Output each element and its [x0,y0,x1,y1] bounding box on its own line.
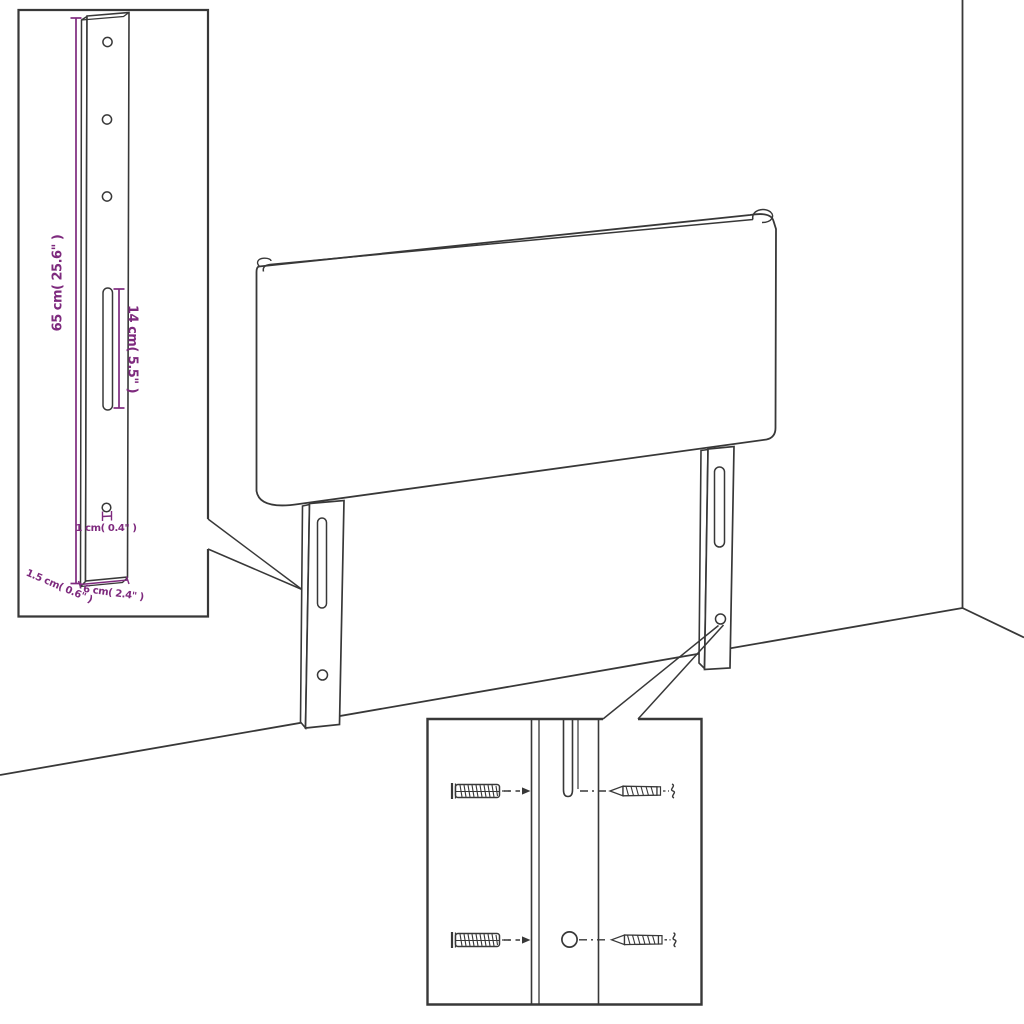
right-leg-slot [715,467,725,547]
leader-arrow-icon [522,936,531,943]
hardware-detail-inset [428,625,724,1005]
wall-plug-icon [452,932,510,948]
bracket-callout-line-upper [208,519,302,590]
leg-closeup-hole [562,932,577,947]
slot-dimension-label: 14 cm( 5.5" ) [125,305,140,393]
product-diagram-canvas: 65 cm( 25.6" ) 14 cm( 5.5" ) 1 cm( 0.4" … [0,0,1024,1024]
hardware-leg-closeup [532,719,599,1005]
headboard-assembly-diagram: 65 cm( 25.6" ) 14 cm( 5.5" ) 1 cm( 0.4" … [0,0,1024,1024]
floor-line-right [963,608,1024,638]
hardware-inset-border [428,719,702,1005]
bracket-hole-3 [102,192,111,201]
height-dimension-label: 65 cm( 25.6" ) [51,235,66,332]
screw-icon [612,933,676,947]
wall-plug-icon [452,783,510,799]
headboard-panel [257,209,777,505]
floor-line-left [0,608,963,775]
left-leg-slot [318,518,327,608]
bracket-hole-1 [103,37,112,46]
screw-icon [610,784,674,798]
left-leg-hole [318,670,328,680]
right-leg [699,447,734,670]
hole-dimension-line [103,516,112,517]
leg-closeup-slot [564,719,573,797]
right-leg-hole [716,614,726,624]
hardware-callout-line-left [603,626,719,720]
left-leg [301,501,345,729]
bracket-slot [103,288,113,410]
leader-arrow-icon [522,787,531,794]
hardware-callout-line-right [638,625,724,719]
bracket-hole-2 [102,115,111,124]
hole-dimension-label: 1 cm( 0.4" ) [75,523,136,534]
bracket-drawing [81,13,130,587]
bracket-bottom-hole [102,503,111,512]
